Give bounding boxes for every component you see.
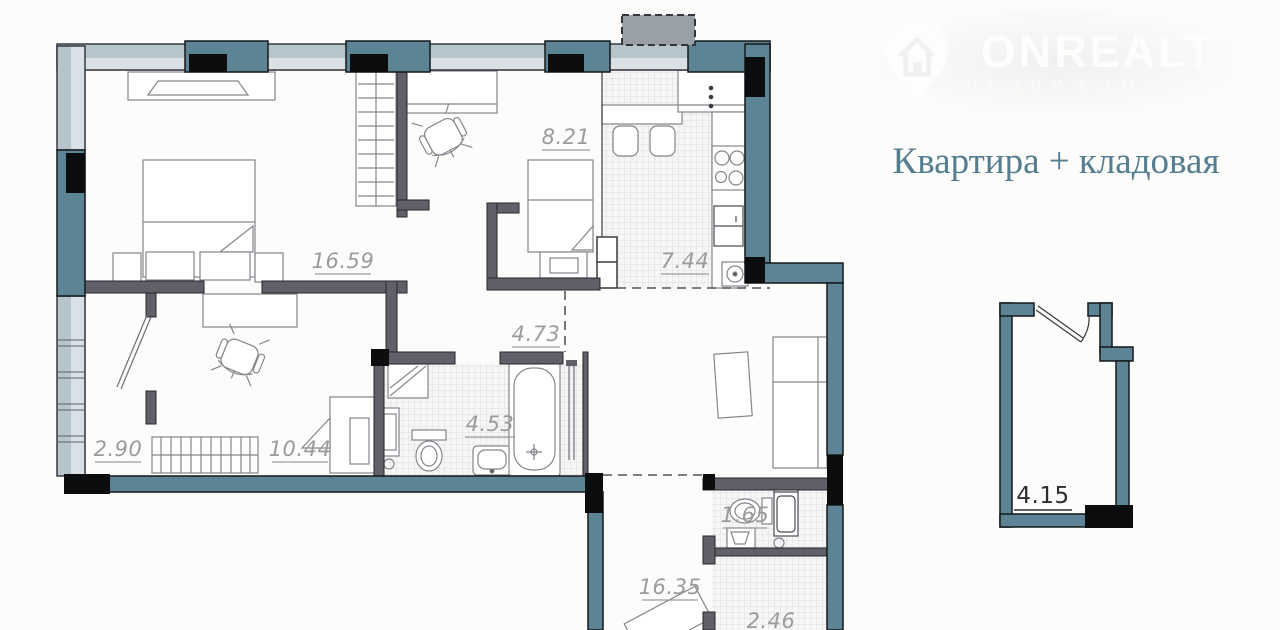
area-label-storage: 4.15 — [1016, 483, 1069, 509]
washing-machine-icon — [388, 364, 428, 398]
plan-title: Квартира + кладовая — [872, 140, 1240, 183]
wall-pier — [1085, 505, 1133, 528]
chair-icon — [613, 126, 638, 156]
area-label-wc: 1.65 — [721, 503, 770, 527]
wardrobe-icon — [356, 72, 396, 206]
stove-icon — [712, 146, 745, 190]
wc-wall — [703, 478, 830, 490]
kitchen-table-icon — [602, 105, 682, 124]
bathtub-icon — [509, 362, 560, 476]
sink-icon — [722, 262, 748, 286]
nightstand-icon — [255, 253, 283, 282]
tv-icon — [148, 81, 248, 95]
nightstand-icon — [113, 253, 141, 282]
room-furniture — [152, 294, 376, 473]
sink-icon — [727, 528, 755, 548]
kids-room-furniture — [406, 71, 593, 278]
bottom-wall — [108, 476, 587, 492]
logo-text: ONREALT НЕДВИЖИМОСТЬ — [966, 28, 1231, 96]
hooks-icon — [709, 86, 714, 109]
area-label-kitchen: 7.44 — [661, 249, 710, 273]
brand-tagline: НЕДВИЖИМОСТЬ — [966, 78, 1231, 96]
area-label-kids-room: 8.21 — [542, 125, 591, 149]
radiator-icon — [152, 437, 258, 473]
area-label-bathroom: 4.53 — [466, 412, 515, 436]
area-label-pantry-lower: 2.46 — [747, 609, 796, 630]
desk-icon — [203, 294, 297, 327]
door-leaf — [1036, 306, 1089, 342]
chair-icon — [650, 126, 675, 156]
bedroom-right-wall — [397, 70, 407, 217]
sink-icon — [473, 446, 511, 475]
office-chair-icon — [210, 323, 271, 387]
right-wall — [827, 283, 843, 455]
door-leaf — [117, 315, 151, 389]
area-label-bedroom: 16.59 — [312, 249, 375, 273]
brand-logo: ONREALT НЕДВИЖИМОСТЬ — [878, 10, 1238, 114]
vent-shaft — [622, 15, 695, 45]
area-label-hall: 4.73 — [512, 322, 561, 346]
washing-machine-icon — [774, 488, 798, 536]
desk-icon — [406, 71, 497, 113]
area-label-closet: 2.90 — [94, 437, 143, 461]
sofa-icon — [773, 337, 827, 468]
brand-name: ONREALT — [981, 28, 1216, 75]
area-label-living-room: 16.35 — [639, 575, 702, 599]
logo-pin-icon — [878, 16, 956, 108]
coffee-table-icon — [714, 352, 752, 418]
fridge-icon — [714, 206, 743, 246]
area-label-room: 10.44 — [269, 437, 332, 461]
bedroom-bottom-wall — [85, 281, 204, 293]
